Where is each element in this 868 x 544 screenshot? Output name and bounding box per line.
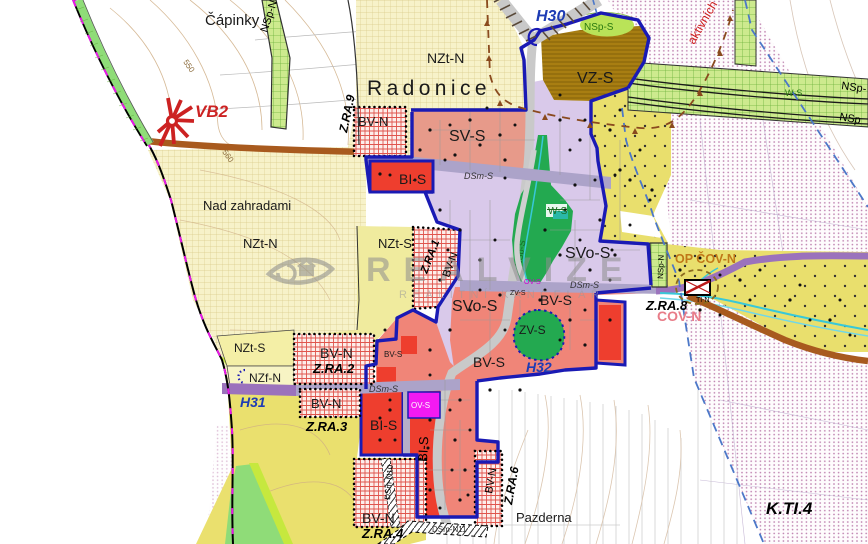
svg-text:Nad zahradami: Nad zahradami: [203, 198, 291, 213]
svg-text:BV-N: BV-N: [358, 114, 388, 129]
svg-text:DSm-S: DSm-S: [369, 384, 398, 394]
svg-text:K.TI.4: K.TI.4: [766, 499, 813, 518]
svg-text:Pazderna: Pazderna: [516, 510, 572, 525]
svg-text:OV-S: OV-S: [524, 279, 541, 286]
svg-text:Radonice: Radonice: [367, 77, 491, 100]
svg-text:NZt-N: NZt-N: [427, 50, 464, 66]
svg-text:BV-N: BV-N: [320, 345, 353, 361]
svg-text:ZV-S: ZV-S: [519, 323, 546, 337]
svg-text:H32: H32: [526, 359, 552, 375]
svg-text:DSm-S: DSm-S: [570, 280, 599, 290]
svg-text:SVo-S: SVo-S: [452, 298, 497, 315]
svg-text:NSp-N: NSp-N: [656, 255, 666, 280]
svg-text:BI-S: BI-S: [370, 417, 397, 433]
svg-text:NSp-S: NSp-S: [584, 22, 614, 33]
svg-text:COV-N: COV-N: [657, 308, 701, 324]
svg-text:Z.RA.4: Z.RA.4: [361, 526, 404, 541]
svg-text:NZt-S: NZt-S: [234, 341, 265, 355]
svg-text:BI-S: BI-S: [415, 436, 431, 462]
svg-text:BV-S: BV-S: [540, 292, 572, 308]
svg-text:H31: H31: [240, 394, 266, 410]
svg-text:DSm-N11: DSm-N11: [432, 525, 467, 534]
svg-text:NZt-N: NZt-N: [243, 236, 278, 251]
svg-text:OV-S: OV-S: [411, 401, 430, 410]
svg-text:W-S: W-S: [785, 88, 802, 98]
svg-text:VB2: VB2: [195, 102, 229, 121]
svg-text:H30: H30: [536, 8, 565, 25]
svg-text:BV-S: BV-S: [384, 350, 402, 359]
svg-text:Z.RA.3: Z.RA.3: [305, 419, 348, 434]
svg-text:W-S: W-S: [548, 206, 568, 217]
svg-text:NZf-N: NZf-N: [249, 371, 281, 385]
svg-text:Z.RA.2: Z.RA.2: [312, 361, 355, 376]
svg-text:BV-N: BV-N: [362, 510, 395, 526]
svg-text:BV-S: BV-S: [473, 354, 505, 370]
svg-text:BV-N: BV-N: [311, 396, 341, 411]
svg-text:SVo-S: SVo-S: [565, 245, 610, 262]
svg-text:DSm-S: DSm-S: [464, 171, 493, 181]
svg-text:OP ČOV-N: OP ČOV-N: [675, 251, 736, 266]
svg-text:VZ-S: VZ-S: [577, 70, 613, 87]
svg-text:ZV-S: ZV-S: [510, 290, 526, 297]
svg-text:BI-S: BI-S: [399, 171, 426, 187]
svg-text:NZt-S: NZt-S: [378, 236, 412, 251]
svg-text:TI-N: TI-N: [696, 297, 710, 304]
svg-text:Čápinky: Čápinky: [205, 12, 260, 29]
svg-text:SV-S: SV-S: [449, 128, 485, 145]
